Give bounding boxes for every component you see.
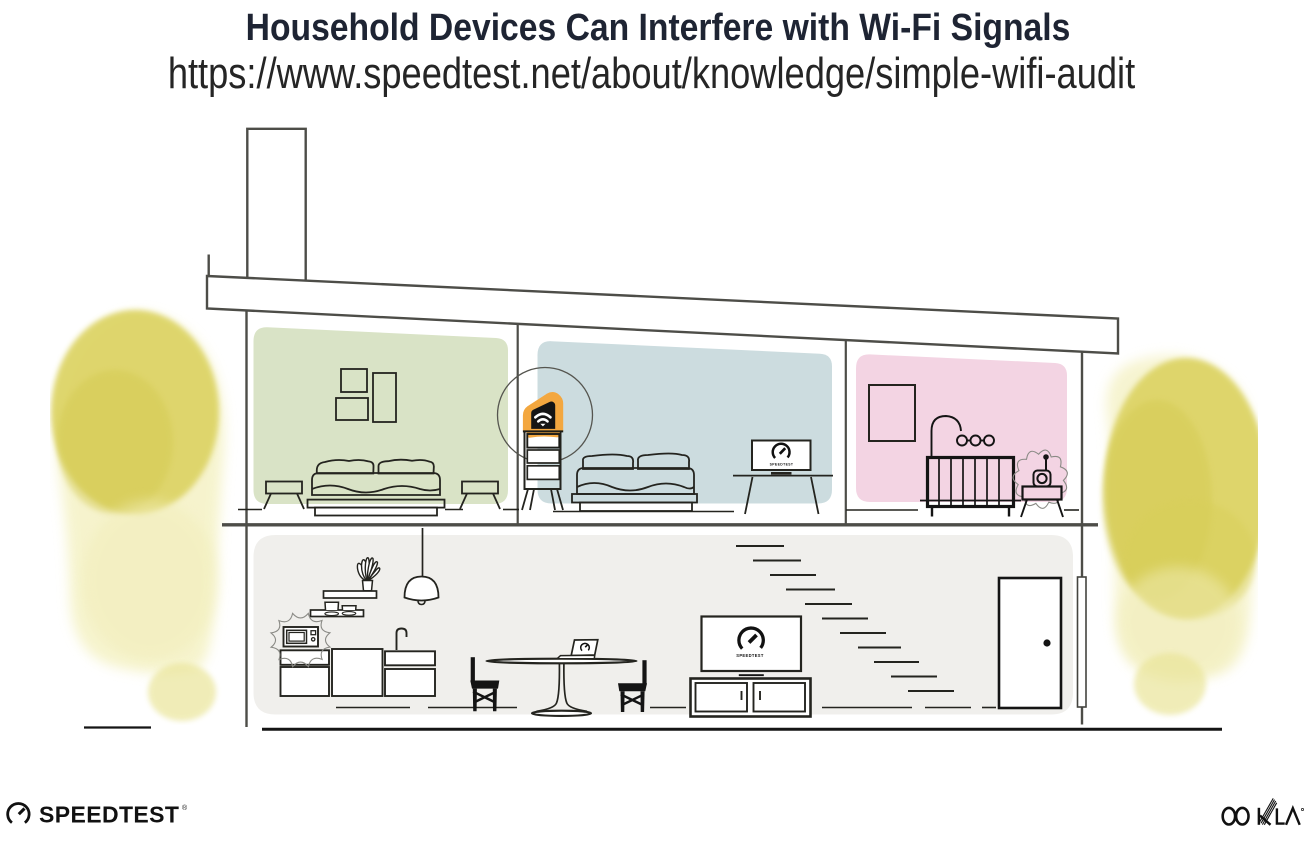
svg-text:SPEEDTEST: SPEEDTEST	[736, 653, 764, 658]
svg-text:SPEEDTEST: SPEEDTEST	[770, 463, 794, 467]
svg-text:SPEEDTEST: SPEEDTEST	[39, 802, 179, 828]
svg-text:®: ®	[182, 804, 188, 812]
